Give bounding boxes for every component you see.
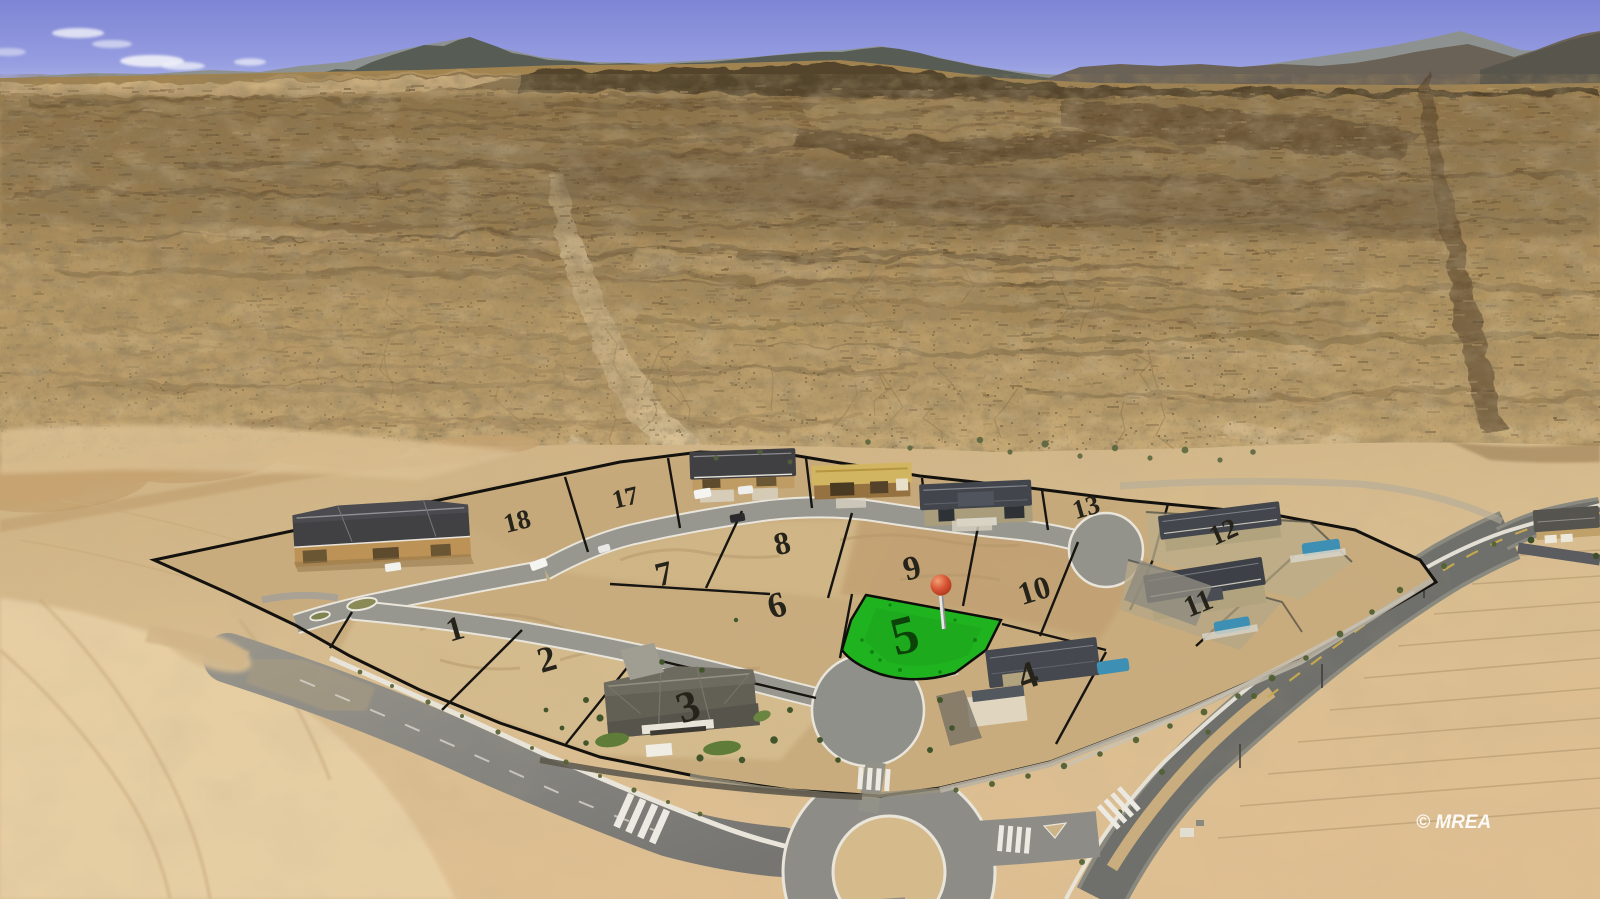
svg-text:© MREA: © MREA — [1416, 812, 1491, 833]
